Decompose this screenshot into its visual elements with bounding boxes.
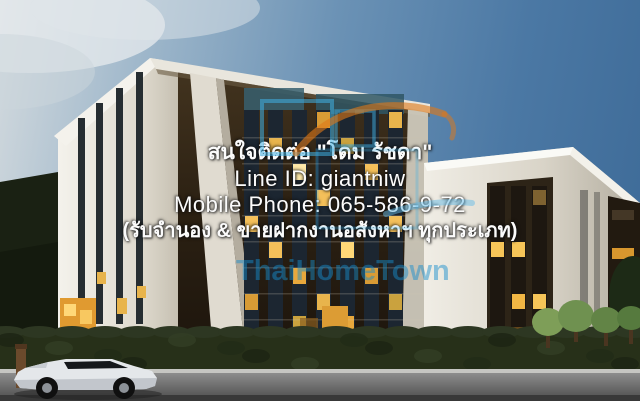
listing-photo: สนใจติดต่อ "โดม รัชดา" Line ID: giantniw… [0,0,640,401]
shadow-wall-left [0,172,58,336]
condo-tower-left [54,58,430,345]
scene-rendering [0,0,640,401]
